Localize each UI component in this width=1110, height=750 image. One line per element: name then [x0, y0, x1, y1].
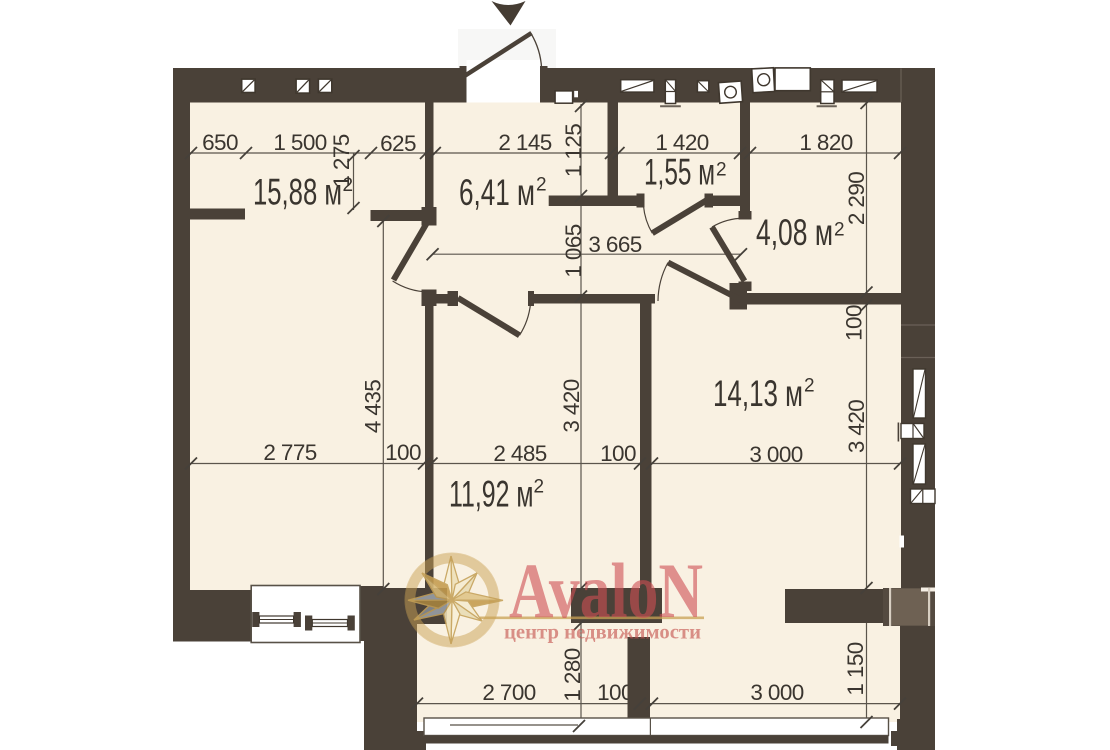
- svg-text:2 775: 2 775: [263, 440, 316, 465]
- svg-text:100: 100: [385, 440, 421, 465]
- svg-text:650: 650: [202, 130, 238, 155]
- svg-text:15,88 м: 15,88 м: [253, 171, 342, 213]
- svg-text:2 485: 2 485: [493, 441, 546, 466]
- svg-text:2: 2: [534, 477, 545, 498]
- svg-text:1 065: 1 065: [561, 224, 586, 277]
- svg-text:100: 100: [600, 441, 636, 466]
- svg-text:625: 625: [380, 131, 416, 156]
- svg-text:3 420: 3 420: [559, 379, 584, 432]
- svg-text:3 000: 3 000: [749, 442, 802, 467]
- svg-text:1,55 м: 1,55 м: [644, 151, 715, 193]
- svg-text:2 145: 2 145: [498, 130, 551, 155]
- svg-text:2: 2: [536, 175, 547, 196]
- svg-text:2: 2: [716, 160, 727, 181]
- svg-text:6,41 м: 6,41 м: [459, 171, 535, 213]
- svg-text:2 700: 2 700: [482, 680, 535, 705]
- svg-text:3 665: 3 665: [588, 232, 641, 257]
- svg-text:100: 100: [842, 305, 867, 341]
- svg-text:4 435: 4 435: [361, 380, 386, 433]
- svg-text:3 420: 3 420: [844, 400, 869, 453]
- svg-text:1 500: 1 500: [273, 130, 326, 155]
- svg-text:3 000: 3 000: [750, 680, 803, 705]
- svg-text:2: 2: [834, 220, 845, 241]
- svg-text:14,13 м: 14,13 м: [713, 372, 803, 414]
- svg-text:2: 2: [804, 376, 815, 397]
- svg-text:11,92 м: 11,92 м: [449, 473, 534, 515]
- svg-text:1 125: 1 125: [561, 124, 586, 177]
- svg-text:центр недвижимости: центр недвижимости: [504, 622, 701, 644]
- svg-text:2: 2: [343, 175, 354, 196]
- svg-text:1 150: 1 150: [843, 642, 868, 695]
- svg-text:2 290: 2 290: [844, 172, 869, 225]
- svg-text:1 280: 1 280: [560, 648, 585, 701]
- svg-text:1 820: 1 820: [799, 130, 852, 155]
- svg-text:4,08 м: 4,08 м: [756, 211, 833, 253]
